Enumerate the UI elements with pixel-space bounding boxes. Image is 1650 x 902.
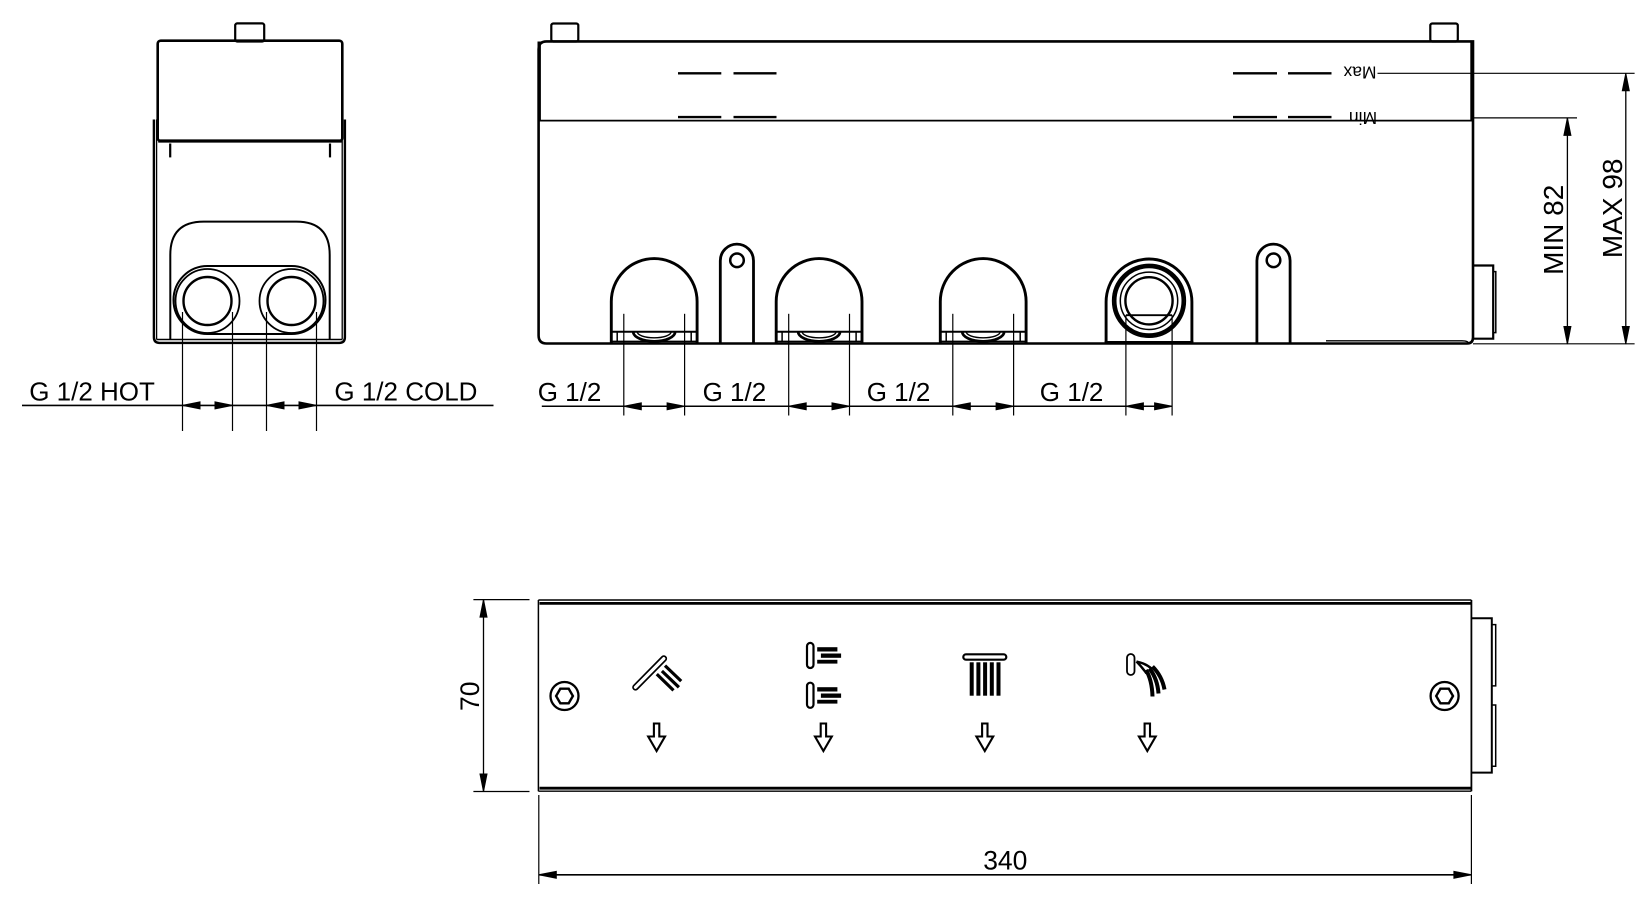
svg-text:MIN 82: MIN 82 (1538, 185, 1569, 275)
svg-text:340: 340 (983, 846, 1027, 876)
svg-text:Min: Min (1349, 108, 1377, 128)
svg-text:G 1/2: G 1/2 (703, 377, 767, 407)
svg-text:MAX 98: MAX 98 (1597, 158, 1628, 258)
svg-text:Max: Max (1343, 62, 1376, 82)
svg-text:G 1/2 HOT: G 1/2 HOT (29, 376, 155, 406)
svg-text:G 1/2: G 1/2 (1040, 377, 1104, 407)
svg-text:G 1/2: G 1/2 (538, 377, 602, 407)
svg-text:70: 70 (455, 682, 485, 711)
svg-text:G 1/2 COLD: G 1/2 COLD (334, 376, 477, 406)
svg-text:G 1/2: G 1/2 (867, 377, 931, 407)
